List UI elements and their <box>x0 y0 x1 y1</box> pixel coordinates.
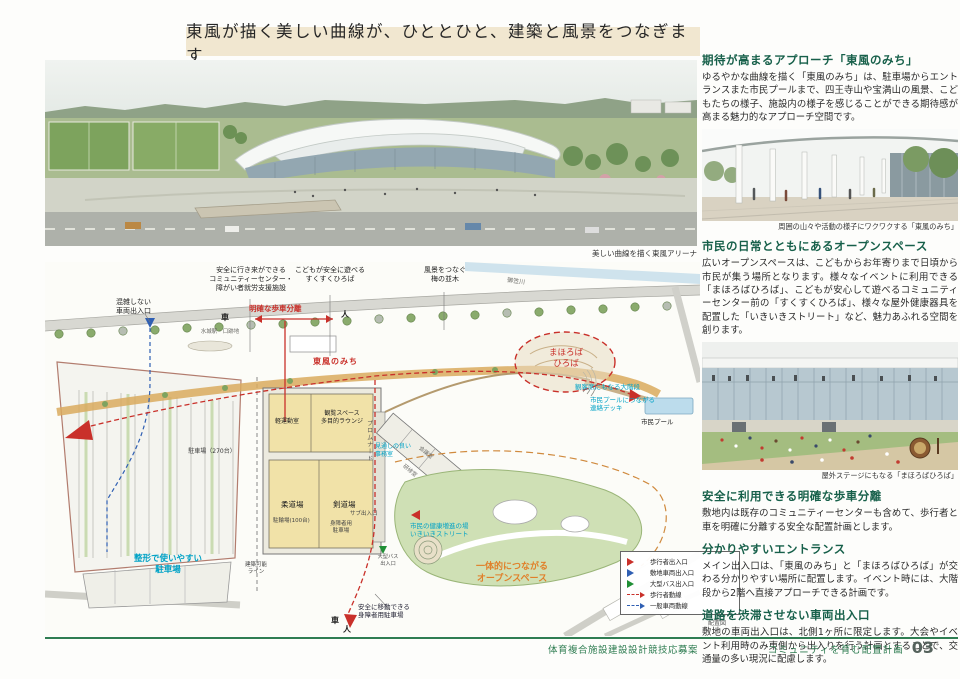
plan-label-car-bottom: 車 <box>331 616 339 626</box>
footer-project-title: 体育複合施設建設設計競技応募案 <box>548 642 698 656</box>
footer-page-number: 03 <box>912 638 934 657</box>
presentation-board-page: 東風が描く美しい曲線が、ひととひと、建築と風景をつなぎます <box>0 0 960 679</box>
section-heading: 安全に利用できる明確な歩車分離 <box>702 488 958 504</box>
pedestrian-entrance-icon <box>627 558 645 566</box>
plan-label-judo: 柔道場 <box>281 500 304 510</box>
section-image-caption: 周囲の山々や活動の様子にワクワクする「東風のみち」 <box>702 222 958 232</box>
section-entrance: 分かりやすいエントランス メイン出入口は、「東風のみち」と「まほろばひろば」が交… <box>702 541 958 600</box>
plan-label-safe-disabled-parking: 安全に移動できる 身障者用駐車場 <box>358 603 440 620</box>
plan-label-lounge: 観覧スペース 多目的ラウンジ <box>314 410 370 425</box>
plan-label-mizuki-station: 水城駅・口跡地 <box>185 329 255 336</box>
plan-label-parking-count: 駐車場（270台） <box>177 448 247 456</box>
plan-label-pool-deck: 市民プールにつながる 連絡デッキ <box>590 396 698 413</box>
site-plan: 混雑しない 車両出入口 安全に行き来ができる コミュニティーセンター・ 障がい者… <box>45 262 700 636</box>
section-image-caption: 屋外ステージにもなる「まほろばひろば」 <box>702 471 958 481</box>
legend-label: 敷地車両出入口 <box>650 568 694 577</box>
legend-label: 一般車両動線 <box>650 601 688 610</box>
aerial-rendering <box>45 60 697 246</box>
plan-label-promenade: プロムナード <box>365 420 373 462</box>
right-column: 期待が高まるアプローチ「東風のみち」 ゆるやかな曲線を描く「東風のみち」は、駐車… <box>702 52 958 666</box>
plan-label-car-top: 車 <box>221 313 229 323</box>
section-heading: 分かりやすいエントランス <box>702 541 958 557</box>
section-heading: 道路を渋滞させない車両出入口 <box>702 607 958 623</box>
page-title: 東風が描く美しい曲線が、ひととひと、建築と風景をつなぎます <box>186 18 700 66</box>
plan-label-civic-pool: 市民プール <box>641 418 674 426</box>
plan-label-bicycle-parking: 駐輪場(100台) <box>273 518 310 525</box>
plan-label-bus-entrance: 大型バス 出入口 <box>371 554 405 567</box>
legend-label: 歩行者動線 <box>650 590 681 599</box>
section-body: 敷地内は既存のコミュニティーセンターも含めて、歩行者と車を明確に分離する安全な配… <box>702 507 958 534</box>
plan-label-plum-trees: 風景をつなぐ 梅の並木 <box>409 266 481 284</box>
mahoroba-rendering <box>702 342 958 470</box>
plan-label-person-bottom: 人 <box>343 625 351 635</box>
plan-label-person-top: 人 <box>341 310 349 320</box>
section-approach: 期待が高まるアプローチ「東風のみち」 ゆるやかな曲線を描く「東風のみち」は、駐車… <box>702 52 958 232</box>
vehicle-flow-icon <box>627 603 645 609</box>
plan-label-mahoroba: まほろば ひろば <box>537 348 595 370</box>
section-heading: 市民の日常とともにあるオープンスペース <box>702 238 958 254</box>
plan-label-office-view: 見通しの良い 事務室 <box>375 443 411 458</box>
legend-label: 歩行者出入口 <box>650 557 688 566</box>
section-body: 広いオープンスペースは、こどもからお年寄りまで日頃から市民が集う場所となります。… <box>702 257 958 337</box>
section-open-space: 市民の日常とともにあるオープンスペース 広いオープンスペースは、こどもからお年寄… <box>702 238 958 481</box>
plan-label-congestion: 混雑しない 車両出入口 <box>93 298 151 316</box>
plan-label-buildable-line: 建築可能 ライン <box>236 562 276 576</box>
section-heading: 期待が高まるアプローチ「東風のみち」 <box>702 52 958 68</box>
plan-label-iki-iki-street: 市民の健康増進の場 いきいきストリート <box>410 522 510 539</box>
plan-label-kendo: 剣道場 <box>333 500 356 510</box>
header-band: 東風が描く美しい曲線が、ひととひと、建築と風景をつなぎます <box>186 27 700 56</box>
plan-label-sub-entrance: サブ出入口 <box>350 511 378 518</box>
footer-right-group: コミュニティを育む配置計画 03 <box>768 638 934 657</box>
plan-label-light-exercise: 軽運動室 <box>275 418 299 426</box>
approach-rendering <box>702 129 958 221</box>
bus-entrance-icon <box>627 580 645 588</box>
site-vehicle-entrance-icon <box>627 569 645 577</box>
section-separation: 安全に利用できる明確な歩車分離 敷地内は既存のコミュニティーセンターも含めて、歩… <box>702 488 958 534</box>
plan-label-disabled-parking-small: 身障者用 駐車場 <box>323 521 359 535</box>
plan-label-sukusuku: こどもが安全に遊べる すくすくひろば <box>277 266 383 284</box>
plan-label-pedestrian-separation: 明確な歩車分離 <box>249 304 302 314</box>
plan-label-grand-stairs: 観客席にもなる大階段 <box>575 383 640 391</box>
pedestrian-flow-icon <box>627 592 645 598</box>
plan-label-shapely-parking: 整形で使いやすい 駐車場 <box>128 554 208 576</box>
footer-section-title: コミュニティを育む配置計画 <box>768 642 904 656</box>
section-body: メイン出入口は、「東風のみち」と「まほろばひろば」が交わる分かりやすい場所に配置… <box>702 560 958 600</box>
plan-label-open-space: 一体的につながる オープンスペース <box>457 562 567 585</box>
aerial-caption: 美しい曲線を描く東風アリーナ <box>45 248 697 259</box>
legend-label: 大型バス出入口 <box>650 579 694 588</box>
aerial-rendering-art <box>45 60 697 246</box>
section-body: ゆるやかな曲線を描く「東風のみち」は、駐車場からエントランスまた市民プールまで、… <box>702 71 958 124</box>
plan-label-kochi-no-michi: 東風のみち <box>313 357 358 367</box>
